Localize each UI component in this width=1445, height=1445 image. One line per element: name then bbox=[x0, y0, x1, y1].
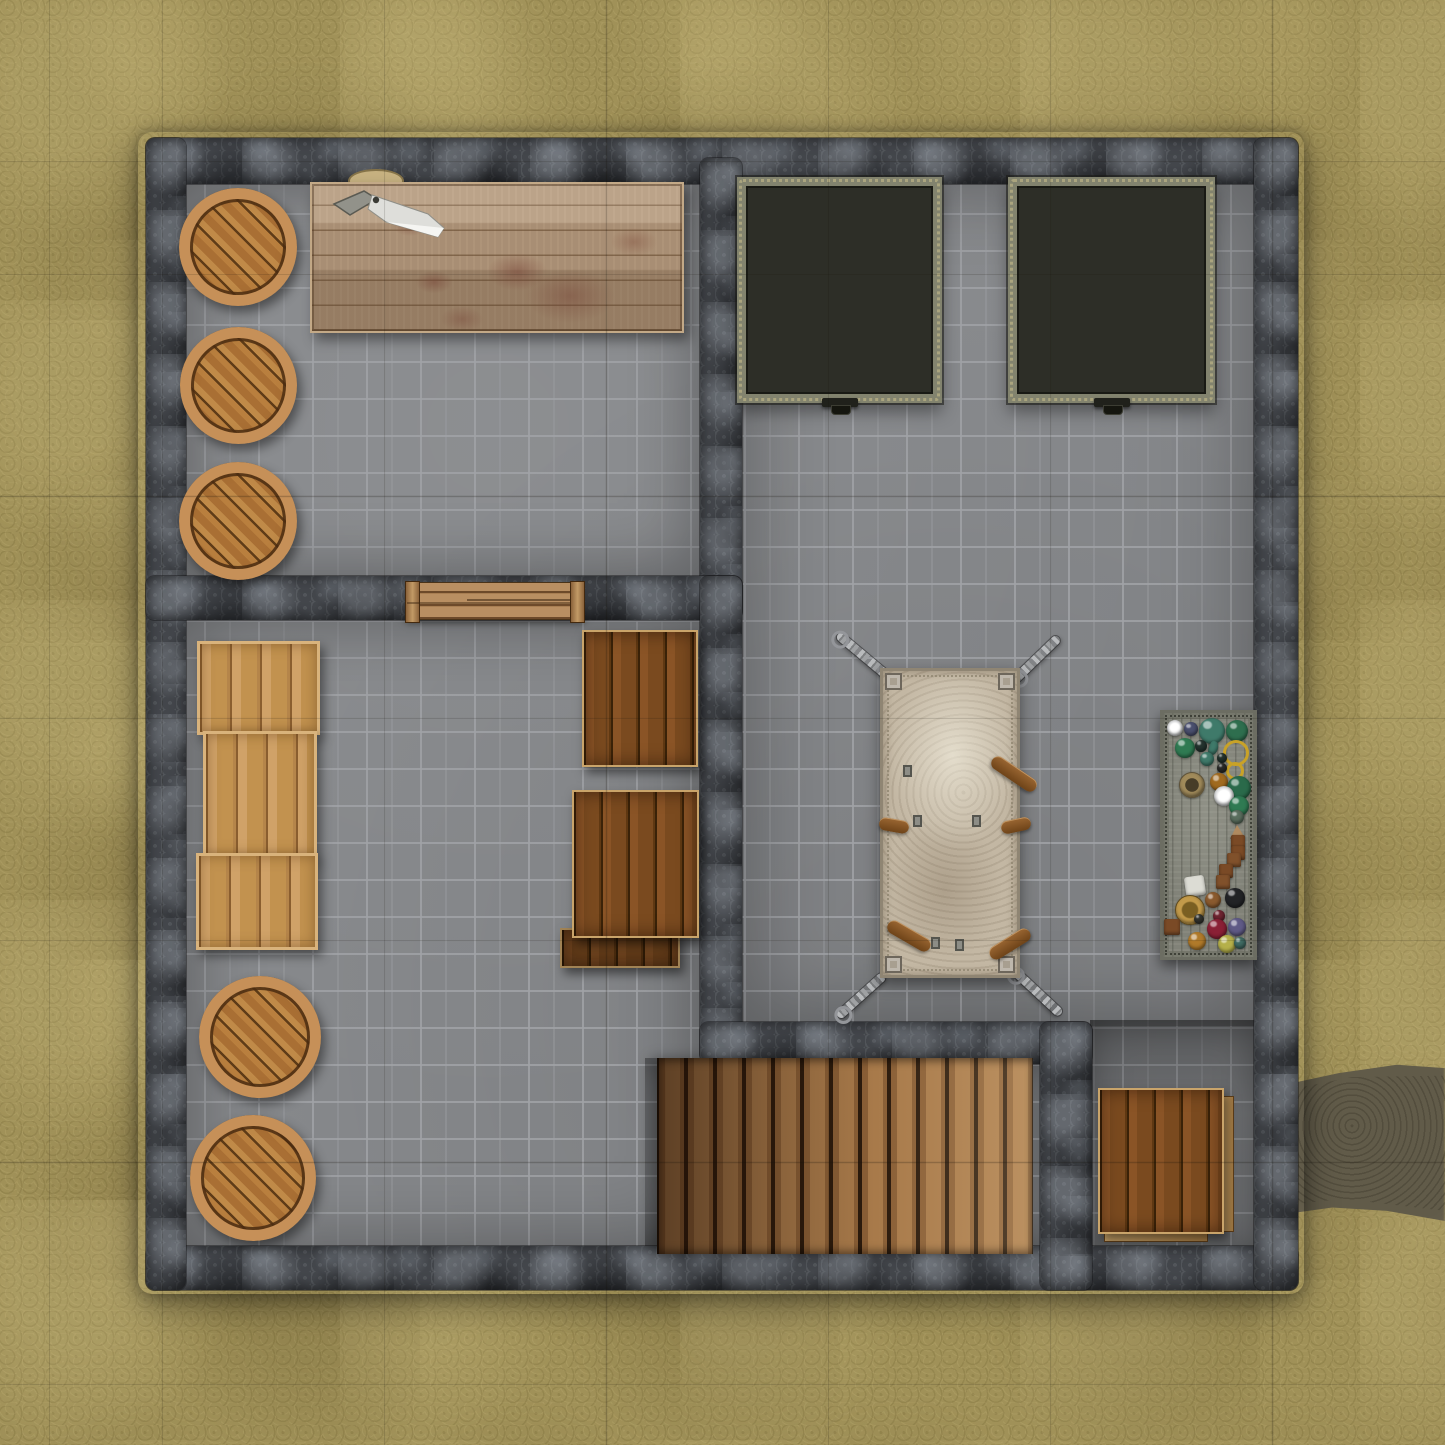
wall-east bbox=[1254, 138, 1298, 1290]
pine-crate bbox=[196, 853, 318, 950]
wall-west bbox=[146, 138, 186, 1290]
orb-trinket bbox=[1234, 937, 1246, 949]
dark-crate-nook bbox=[1098, 1088, 1224, 1234]
wooden-barrel bbox=[180, 327, 297, 444]
mortar-trinket bbox=[1179, 772, 1205, 798]
rack-corner-plate bbox=[885, 673, 902, 690]
dungeon-battle-map bbox=[0, 0, 1445, 1445]
wooden-barrel bbox=[190, 1115, 316, 1241]
grate-handle-icon bbox=[1094, 398, 1130, 407]
door-seam bbox=[467, 599, 585, 601]
box-trinket bbox=[1164, 919, 1180, 935]
door-seam bbox=[407, 602, 585, 604]
orb-trinket bbox=[1200, 752, 1214, 766]
cloth-trinket bbox=[1184, 875, 1207, 898]
leather-strap bbox=[885, 918, 934, 954]
wall-interior-vertical-north bbox=[700, 158, 742, 620]
rack-corner-plate bbox=[998, 956, 1015, 973]
orb-trinket bbox=[1175, 738, 1195, 758]
orb-trinket bbox=[1225, 888, 1245, 908]
orb-trinket bbox=[1226, 720, 1248, 742]
wall-interior-vertical-south bbox=[700, 576, 742, 1062]
orb-trinket bbox=[1217, 763, 1227, 773]
orb-trinket bbox=[1217, 753, 1227, 763]
cleaver-icon bbox=[328, 184, 458, 242]
orb-trinket bbox=[1188, 932, 1206, 950]
leather-strap bbox=[878, 816, 910, 834]
dark-crate bbox=[572, 790, 699, 938]
floor-grate-right bbox=[1008, 177, 1215, 403]
wooden-barrel bbox=[179, 462, 297, 580]
dirt-trail-texture bbox=[1290, 1065, 1445, 1217]
dark-crate bbox=[582, 630, 698, 767]
orb-trinket bbox=[1230, 810, 1244, 824]
wooden-staircase bbox=[657, 1058, 1033, 1254]
orb-trinket bbox=[1205, 892, 1221, 908]
orb-trinket bbox=[1194, 914, 1204, 924]
orb-trinket bbox=[1228, 918, 1246, 936]
strap-buckle bbox=[931, 937, 940, 949]
strap-buckle bbox=[955, 939, 964, 951]
floor-grate-left bbox=[737, 177, 942, 403]
wooden-barrel bbox=[179, 188, 297, 306]
wooden-door bbox=[406, 582, 584, 620]
rack-corner-plate bbox=[998, 673, 1015, 690]
torture-rack bbox=[880, 668, 1020, 978]
orb-trinket bbox=[1184, 722, 1198, 736]
strap-buckle bbox=[913, 815, 922, 827]
orb-trinket bbox=[1195, 740, 1207, 752]
rack-corner-plate bbox=[885, 956, 902, 973]
strap-buckle bbox=[903, 765, 912, 777]
grate-handle-icon bbox=[822, 398, 858, 407]
wall-beside-stairs bbox=[1040, 1022, 1092, 1290]
plate-trinket bbox=[1167, 720, 1183, 736]
pine-crate bbox=[203, 731, 317, 858]
strap-buckle bbox=[972, 815, 981, 827]
alchemy-table bbox=[1160, 710, 1257, 960]
box-trinket bbox=[1216, 875, 1230, 889]
pine-crate bbox=[197, 641, 320, 735]
wooden-barrel bbox=[199, 976, 321, 1098]
